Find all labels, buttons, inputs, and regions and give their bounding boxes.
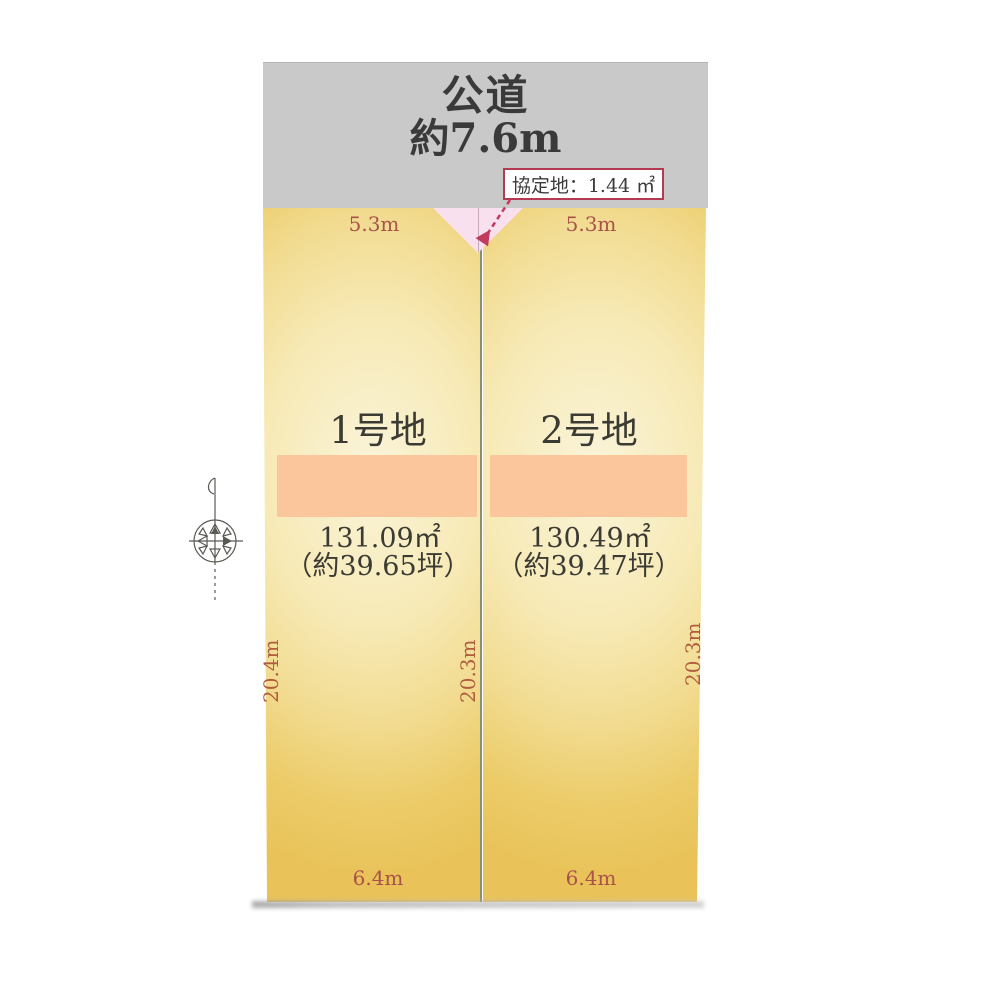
ground-shadow — [252, 901, 704, 908]
lot-2-area-tsubo: （約39.47坪） — [496, 544, 681, 583]
lot-2-frontage-dimension: 5.3m — [566, 212, 617, 236]
callout-arrow — [470, 196, 520, 248]
agreement-callout-label: 協定地：1.44 ㎡ — [512, 171, 655, 198]
lot-2-right-side-dimension: 20.3m — [681, 634, 705, 686]
lot-1-highlight-band — [277, 455, 477, 517]
compass-north-icon — [183, 468, 249, 606]
lot-1-right-side-dimension: 20.3m — [456, 651, 480, 703]
lot-2-title: 2号地 — [540, 400, 638, 454]
lot-boundary-line — [480, 208, 482, 902]
road-width-label: 約7.6m — [410, 117, 562, 161]
lot-1-title: 1号地 — [329, 400, 427, 454]
lot-1-bottom-dimension: 6.4m — [353, 866, 404, 890]
agreement-callout-box: 協定地：1.44 ㎡ — [503, 168, 664, 200]
lot-1-frontage-dimension: 5.3m — [349, 212, 400, 236]
lot-1-area-tsubo: （約39.65坪） — [285, 544, 470, 583]
lot-layout-diagram: 公道 約7.6m 協定地：1.44 ㎡ 1号地 131.09㎡ （約39.65坪… — [0, 0, 1000, 990]
lot-1-left-side-dimension: 20.4m — [259, 651, 283, 703]
lot-2-bottom-dimension: 6.4m — [566, 866, 617, 890]
road-name-label: 公道 — [441, 75, 529, 117]
lot-2-highlight-band — [490, 455, 687, 517]
